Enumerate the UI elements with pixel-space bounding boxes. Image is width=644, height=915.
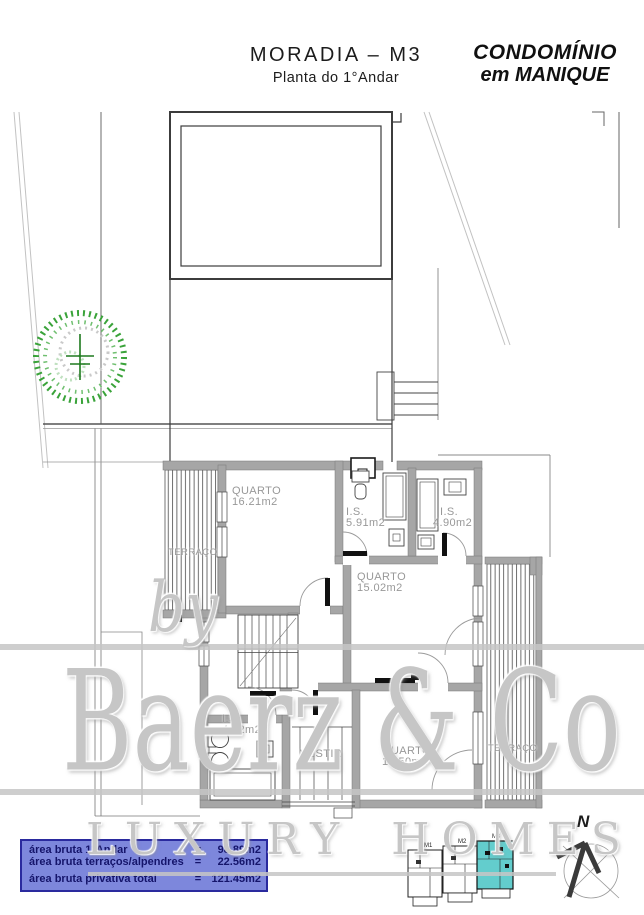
brand-line2: em MANIQUE: [458, 64, 632, 87]
page-subtitle: Planta do 1°Andar: [238, 70, 434, 86]
keyplan-unit-m3-label: M3: [492, 834, 500, 840]
north-label: N: [577, 812, 589, 832]
floor-plan-sheet: MORADIA – M3 Planta do 1°Andar CONDOMÍNI…: [0, 0, 644, 915]
room-label-quarto2: QUARTO 15.02m2: [357, 572, 406, 594]
room-label-terraco-right: TERRAÇO: [488, 744, 537, 754]
north-arrow: [557, 843, 619, 898]
room-label-is3: I.S. 4.62m2: [222, 714, 261, 736]
room-label-terraco-left: TERRAÇO: [168, 548, 217, 558]
legend-row: área bruta 1°Andar = 98.89m2: [29, 844, 261, 856]
keyplan-unit-m2-label: M2: [458, 839, 466, 845]
legend-row: área bruta privativa total = 121.45m2: [29, 873, 261, 885]
terrace-hatch-left: [165, 470, 218, 610]
room-label-is1: I.S. 5.91m2: [346, 507, 385, 529]
room-label-vestir: VESTIR: [300, 749, 342, 760]
area-legend: área bruta 1°Andar = 98.89m2 área bruta …: [20, 839, 268, 892]
brand-line1: CONDOMÍNIO: [458, 41, 632, 65]
terrace-hatch-right: [487, 564, 536, 800]
legend-row: área bruta terraços/alpendres = 22.56m2: [29, 856, 261, 868]
floor-plan-drawing: [0, 0, 644, 915]
staircase: [238, 615, 298, 688]
room-label-quarto3: QUARTO 13.50m2: [382, 746, 431, 768]
exterior-steps: [377, 372, 438, 420]
key-plan: [408, 841, 513, 906]
project-brand: CONDOMÍNIO em MANIQUE: [458, 41, 632, 87]
room-label-quarto1: QUARTO 16.21m2: [232, 486, 281, 508]
keyplan-unit-m1-label: M1: [424, 843, 432, 849]
page-title: MORADIA – M3: [238, 44, 434, 67]
room-label-is2: I.S. 4.90m2: [433, 507, 472, 529]
upper-structure-outline: [170, 112, 401, 462]
tree: [36, 313, 124, 401]
title-block: MORADIA – M3 Planta do 1°Andar: [238, 44, 434, 86]
